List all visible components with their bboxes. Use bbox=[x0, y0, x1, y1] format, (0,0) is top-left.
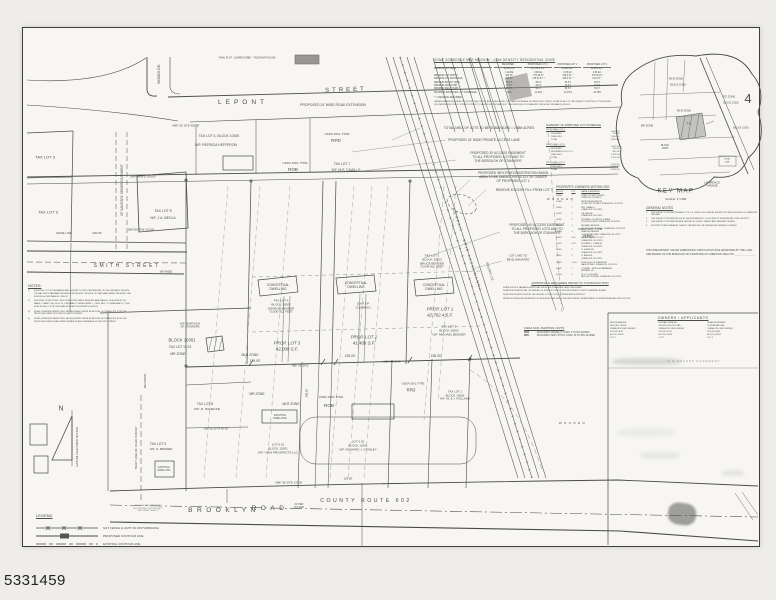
coverage-summary-title: SUMMARY OF IMPROVED LOT COVERAGE bbox=[546, 124, 620, 127]
soil-type-label: USDA SOIL TYPE bbox=[402, 382, 425, 385]
general-note-item: 1.THE SUBJECT PROPERTIES ARE LOTS 1 & 4 … bbox=[646, 212, 758, 217]
legend-title: LEGEND bbox=[36, 513, 52, 518]
po-block-cell: 10303 bbox=[556, 231, 572, 236]
bearing-label: N86° 56' 29"E 175.00' bbox=[275, 481, 302, 484]
keymap-site-label: P.S. bbox=[687, 122, 692, 125]
po-header-row: BLOCKLOTNAME & ADDRESS bbox=[556, 191, 653, 194]
po-block-cell: 10305 bbox=[556, 219, 572, 224]
note-item: 2)EXISTING CONDITIONS, INCLUDING WETLAND… bbox=[28, 300, 132, 309]
po-lot-cell: 1 bbox=[572, 195, 582, 200]
contour-lines bbox=[204, 186, 456, 478]
po-name-cell: H. BENDER STANHOPE, NJ 07874 bbox=[581, 255, 653, 260]
tax-lot-1-10306-label: TAX LOT 1 BLOCK 10306 N/F: W. & J. HOLLA… bbox=[440, 391, 470, 402]
soil-type-label: USDA SOIL TYPE bbox=[282, 162, 307, 166]
po-name-cell: R. HUNECKE STANHOPE, NJ 07874 bbox=[581, 249, 653, 254]
lot-lines bbox=[27, 55, 758, 545]
datum-label: DATUM FILED MAP No.939 bbox=[76, 427, 80, 466]
existing-dwelling-label: EXISTING DWELLING bbox=[273, 414, 287, 420]
po-name-cell: MICHAEL BENDER 200 BROOKLYN ROAD, STANHO… bbox=[581, 225, 653, 230]
soil-type-label: USDA SOIL TYPE bbox=[319, 396, 343, 400]
po-block-cell: 10303 bbox=[556, 225, 572, 230]
po-lot-cell: 9 bbox=[572, 255, 582, 260]
keymap-block-label: BLOCK 10302 bbox=[723, 102, 738, 105]
keymap-block-label: BLOCK 10301 bbox=[733, 127, 748, 130]
notes-list: 1)EXISTING LOT BOUNDARIES ARE SHOWN TO T… bbox=[28, 290, 132, 324]
note-text: THE SUBJECT PROPERTIES ARE SERVED BY PUB… bbox=[651, 221, 735, 224]
po-lot-cell: 1 bbox=[572, 225, 582, 230]
notes-title: NOTES: bbox=[28, 284, 132, 288]
bearing-label: S86°56'29"W 100.00' bbox=[128, 228, 154, 231]
zone-schedule-panel: ZONE SCHEDULE MLR MEDIUM - LOW DENSITY R… bbox=[434, 58, 612, 106]
tract-line-label: TRACT LINE OF FILED SURVEY bbox=[135, 426, 139, 469]
dimension-label: 198.30' bbox=[431, 354, 442, 358]
north-label: N bbox=[58, 406, 63, 415]
roads bbox=[27, 57, 758, 546]
mr-zone-label: MR ZONE bbox=[249, 392, 264, 396]
woods-drive-label: WOODS DR. bbox=[157, 64, 161, 84]
tax-lot-1103-label: TAX LOT 11.03 bbox=[169, 345, 191, 349]
po-name-cell: HIGH PROSPECTS LLC STANHOPE, NJ 07874 bbox=[581, 237, 653, 242]
brooklyn-road-label: BROOKLYN bbox=[188, 507, 260, 515]
coverage-group: PROPOSED LOT 2:ACCESS LANE1,062 S.F.DRIV… bbox=[546, 144, 620, 160]
po-header-cell: LOT bbox=[572, 191, 582, 194]
note-text: ROAD OPENING PERMIT WILL BE REQUIRED FRO… bbox=[34, 318, 132, 324]
coverage-summary-panel: SUMMARY OF IMPROVED LOT COVERAGE PROPOSE… bbox=[546, 124, 620, 172]
conceptual-dwelling-label: CONCEPTUAL DWELLING bbox=[345, 281, 368, 289]
po-block-cell: 10304 bbox=[556, 274, 572, 279]
note-text: EXISTING CONDITIONS, INCLUDING WETLANDS … bbox=[34, 300, 132, 309]
general-note-item: 3.THE SUBJECT PROPERTIES ARE SERVED BY P… bbox=[646, 221, 758, 224]
borough-owner-label: N/F: BOROUGH OF STANHOPE bbox=[180, 323, 200, 330]
approvals-list: SUBDIVISION & VARIANCE APPROVAL FROM THE… bbox=[503, 287, 637, 301]
po-block-cell: 10301 bbox=[556, 249, 572, 254]
po-row: 103058J.A. MEGLA STANHOPE, NJ 07874 bbox=[556, 213, 653, 218]
po-row: 103018R. HUNECKE STANHOPE, NJ 07874 bbox=[556, 249, 653, 254]
lot-8-owner-label: N/F: J.A. MEGLA bbox=[150, 216, 175, 220]
po-lot-cell: 8 bbox=[572, 249, 582, 254]
scan-smudge bbox=[722, 470, 744, 476]
po-row: 103057M.R. CAVALLO STANHOPE, NJ 07874 bbox=[556, 207, 653, 212]
leader-lines bbox=[352, 128, 502, 269]
zone-schedule-title: ZONE SCHEDULE MLR MEDIUM - LOW DENSITY R… bbox=[434, 58, 612, 62]
po-block-cell: 10301 bbox=[556, 243, 572, 248]
po-name-cell: J.A. MEGLA STANHOPE, NJ 07874 bbox=[581, 213, 653, 218]
property-owners-panel: PROPERTY OWNERS WITHIN 200' BLOCKLOTNAME… bbox=[556, 185, 653, 279]
legend-item-label: PROPOSED CONTOUR LINE bbox=[103, 532, 159, 540]
bearing-label: S86°56'29"W 65.00' bbox=[204, 427, 229, 430]
soil-code-rob: RoB bbox=[324, 403, 334, 409]
county-route-label: COUNTY ROUTE 602 bbox=[320, 498, 412, 505]
tax-lot-7-label: TAX LOT 7 bbox=[334, 162, 350, 166]
zone-row: MINIMUM LOT AREA40,000 S.F. 1 ACRE42,762… bbox=[434, 68, 612, 75]
po-row: 103031MICHAEL BENDER 200 BROOKLYN ROAD, … bbox=[556, 225, 653, 230]
hunecke-owner-label: N/F: R. HUNECKE bbox=[194, 408, 220, 412]
detention-basin-note: PROPOSED INFILTRATION/DETENTION BASIN AR… bbox=[478, 171, 548, 183]
po-header-cell: NAME & ADDRESS bbox=[581, 191, 653, 194]
lot-602-label: LOT 6.02 BLOCK 10301 N/F: RICHARD J. STA… bbox=[339, 440, 377, 451]
bearing-label: N86° 56' 29"E 450.00' bbox=[172, 124, 199, 127]
general-notes-list: 1.THE SUBJECT PROPERTIES ARE LOTS 1 & 4 … bbox=[646, 212, 758, 228]
po-block-cell: 10306 bbox=[556, 195, 572, 200]
po-name-cell: STATE OF NEW JERSEY TRENTON, NJ 08625 bbox=[581, 195, 653, 200]
po-row: 103016.01HIGH PROSPECTS LLC STANHOPE, NJ… bbox=[556, 237, 653, 242]
keymap-street-label: LAWRENCE AVENUE bbox=[704, 182, 720, 189]
po-lot-cell: 6.02 bbox=[572, 243, 582, 248]
owner-column: BRUCE BENDER HICKORY DRIVE STANHOPE, NEW… bbox=[610, 322, 659, 340]
po-row: 103042W. & J. HOLLAND BROOKLYN ROAD, STA… bbox=[556, 274, 653, 279]
keymap-block-label: BLOCK 10306 bbox=[670, 84, 685, 87]
po-block-cell: 10305 bbox=[556, 201, 572, 206]
tax-map-note: 60' PER TAX MAP bbox=[294, 503, 304, 509]
dimension-label: 139.00' bbox=[345, 354, 356, 358]
owners-applicants-panel: OWNERS / APPLICANTS BRUCE BENDER HICKORY… bbox=[610, 316, 756, 340]
zone-cell: 40,000 S.F. 1 ACRE bbox=[495, 68, 524, 75]
lot-line-eliminated-note: LOT LINE TO BE ELIMINATED bbox=[507, 254, 530, 262]
street-width-label: (40' WIDE) bbox=[160, 270, 173, 273]
zone-cell: 41,408 S.F. * 0.95 AC. bbox=[553, 68, 582, 75]
coverage-value: 4,881 S.F. bbox=[611, 139, 620, 142]
zone-cell: MAXIMUM IMPROVED LOT COVERAGE bbox=[434, 92, 495, 95]
coverage-row: TOTAL4,701 S.F. bbox=[546, 157, 620, 160]
note-text: EXISTING LOT BOUNDARIES ARE SHOWN TO THE… bbox=[34, 290, 132, 299]
scan-document-number: 5331459 bbox=[4, 572, 66, 589]
po-lot-cell: 6.01 bbox=[572, 237, 582, 242]
po-name-cell: RICHARD O'CONNOR & ANNE 9 WOODS DRIVE, S… bbox=[581, 219, 653, 224]
soil-type-label: USDA SOIL TYPE bbox=[324, 133, 349, 137]
tax-lot-4-block-label: TAX LOT 4 BLOCK 10303 SHARON BENDER 72,0… bbox=[268, 300, 294, 315]
zone-cell: 10.78% bbox=[583, 92, 612, 95]
existing-dwelling-label: EXISTING DWELLING bbox=[157, 466, 170, 472]
sheet-number: 4 bbox=[744, 91, 751, 107]
po-header-cell: BLOCK bbox=[556, 191, 572, 194]
limit-of-clearing-label: LIMIT OF CLEARING bbox=[355, 302, 370, 310]
tax-lot-1-michael-label: TAX LOT 1 BLOCK 10303 N/F: MICHAEL BENDE… bbox=[432, 325, 465, 336]
po-name-cell: SHARON BENDER 26 SPARTA ROAD, STANHOPE, … bbox=[581, 231, 653, 236]
po-lot-cell: 11.03 bbox=[572, 262, 582, 267]
brooklyn-road-label-2: ROAD bbox=[252, 505, 289, 513]
mr-zone-label: MR ZONE bbox=[170, 352, 185, 356]
po-lot-cell: 4 bbox=[572, 231, 582, 236]
note-text: ROAD OPENING PERMIT WILL BE REQUIRED FRO… bbox=[34, 311, 132, 317]
po-block-cell: 10301 bbox=[556, 237, 572, 242]
keymap-zone-label: MLR ZONE bbox=[669, 77, 683, 80]
north-arrow bbox=[52, 410, 72, 466]
zone-schedule-paragraph: VARIANCES ARE REQUIRED FOR PROPOSED LOTS… bbox=[434, 101, 612, 106]
po-name-cell: BOROUGH OF STANHOPE MAIN STREET, STANHOP… bbox=[581, 262, 653, 267]
bearing-label: N89°34'28"E 100.00' bbox=[130, 175, 156, 178]
tax-lot-4-10305-label: TAX LOT 4, BLOCK 10305 bbox=[199, 134, 239, 138]
dimension-label: 125.00' bbox=[343, 477, 352, 480]
general-notes-title: GENERAL NOTES bbox=[646, 206, 758, 210]
owner-column: SHARON BENDER 26 SPARTA ROAD STANHOPE, N… bbox=[707, 322, 756, 340]
note-item: 4)ROAD OPENING PERMIT WILL BE REQUIRED F… bbox=[28, 318, 132, 324]
po-lot-cell: 2 bbox=[572, 274, 582, 279]
po-block-cell: 10302 bbox=[556, 268, 572, 273]
po-name-cell: PATRICIA HEFFERON 10 LEPONT STREET, STAN… bbox=[581, 201, 653, 206]
po-row: 103019H. BENDER STANHOPE, NJ 07874 bbox=[556, 255, 653, 260]
soil-description: ROCKAWAY VERY STONY LOAM, 15 TO 25% SLOP… bbox=[537, 335, 595, 337]
soil-code: RoB bbox=[524, 332, 537, 334]
block-10301-label: BLOCK 10301 bbox=[168, 337, 195, 342]
po-lot-cell: 4 bbox=[572, 201, 582, 206]
keymap-title: KEY MAP bbox=[657, 188, 694, 196]
zone-cell: 42,762.4 S.F. * 0.98 AC. bbox=[524, 68, 553, 75]
general-note-item: 4.EXISTING TREES GREATER THAN 6" CALIPER… bbox=[646, 225, 758, 228]
tax-lot-3-label: TAX LOT 3 bbox=[35, 155, 55, 160]
approval-item: SEWER EXTENSION/TREATMENT WORKS APPROVAL… bbox=[503, 298, 637, 301]
approval-item: SUBDIVISION & VARIANCE APPROVAL FROM THE… bbox=[503, 287, 637, 290]
zone-line-label: ZONE LINE bbox=[56, 232, 72, 236]
zone-cell: 42,000 S.F. * 0.96 AC. bbox=[583, 68, 612, 75]
tax-lot-1-bruce-label: TAX LOT 1 BLOCK 10303 BRUCE BENDER 72,04… bbox=[420, 255, 444, 270]
bearing-label: N86° 56' 29"E bbox=[292, 364, 309, 367]
road-extension-note: PROPOSED 24' WIDE ROAD EXTENSION bbox=[300, 103, 366, 107]
po-block-cell: 10305 bbox=[556, 207, 572, 212]
zone-cell: MINIMUM LOT AREA bbox=[434, 68, 495, 75]
po-name-cell: W. & J. HOLLAND BROOKLYN ROAD, STANHOPE,… bbox=[581, 274, 653, 279]
po-row: 103021CONRAIL - ERIE LACKAWANNA NEWARK, … bbox=[556, 268, 653, 273]
scan-smudge bbox=[616, 428, 676, 437]
dimension-label: 175.00' bbox=[250, 359, 261, 363]
tax-lot-9-label: TAX LOT 9 bbox=[38, 210, 58, 215]
tax-lot-9-bender-label: TAX LOT 9 bbox=[150, 442, 166, 446]
coverage-label: TOTAL bbox=[551, 169, 557, 172]
scanned-survey-plan: LEPONTSTREETPROPOSED 24' WIDE ROAD EXTEN… bbox=[0, 0, 776, 600]
po-name-cell: M.R. CAVALLO STANHOPE, NJ 07874 bbox=[581, 207, 653, 212]
general-notes-panel: GENERAL NOTES 1.THE SUBJECT PROPERTIES A… bbox=[646, 206, 758, 228]
keymap-block-label: BLOCK 10303 bbox=[661, 144, 669, 150]
po-lot-cell: 7 bbox=[572, 207, 582, 212]
zone-schedule-table: REQUIREDPROPOSED LOT 1PROPOSED LOT 2PROP… bbox=[434, 64, 612, 95]
po-row: 103061STATE OF NEW JERSEY TRENTON, NJ 08… bbox=[556, 195, 653, 200]
mlr-zone-label: MLR ZONE bbox=[282, 402, 299, 406]
po-block-cell: 10301 bbox=[556, 262, 572, 267]
bearing-label: N86° 56' 29"E bbox=[384, 360, 401, 363]
po-row: 103059RICHARD O'CONNOR & ANNE 9 WOODS DR… bbox=[556, 219, 653, 224]
lepont-street-label-2: STREET bbox=[325, 87, 367, 96]
note-item: 3)ROAD OPENING PERMIT WILL BE REQUIRED F… bbox=[28, 311, 132, 317]
zone-row: MAXIMUM IMPROVED LOT COVERAGE15%11.41%10… bbox=[434, 92, 612, 95]
legend-item-label: EXISTING CONTOUR LINE bbox=[103, 540, 159, 548]
legend-item-label: SILT FENCE & LIMIT OF DISTURBANCE bbox=[103, 524, 159, 532]
legend-lines bbox=[36, 526, 98, 544]
approval-item: PLAN CERTIFICATION FROM THE SUSSEX COUNT… bbox=[503, 294, 637, 297]
excess-fill-note: REMOVE EXCESS FILL FROM LOT 7 bbox=[496, 188, 553, 192]
approval-item: SUBDIVISION APPROVAL OR WAIVER OF JURISD… bbox=[503, 290, 637, 293]
coverage-group: PROPOSED LOT 1:ACCESS LANE1,861 S.F.DRIV… bbox=[546, 129, 620, 142]
po-lot-cell: 9 bbox=[572, 219, 582, 224]
property-owners-table: BLOCKLOTNAME & ADDRESS103061STATE OF NEW… bbox=[556, 191, 653, 279]
note-text: THE SUBJECT PROPERTIES ARE LOTS 1 & 4 IN… bbox=[651, 212, 758, 217]
tax-lot-8-label: TAX LOT 8 bbox=[154, 209, 171, 213]
prop-lot-1-label: PROP. LOT 1 42,762.4 S.F. bbox=[427, 307, 454, 318]
access-lane-note: PROPOSED 24' WIDE PRIVATE ACCESS LANE bbox=[448, 138, 520, 142]
mlr-zone-label: MLR ZONE bbox=[241, 353, 258, 357]
lot-7-owner-label: N/F: M.R. CAVALLO bbox=[332, 168, 361, 172]
soil-code-rpd: RpD bbox=[331, 138, 341, 144]
approvals-panel: APPROVALS REQUIRED PRIOR TO CONSTRUCTION… bbox=[503, 281, 637, 301]
po-block-cell: 10305 bbox=[556, 213, 572, 218]
approvals-title: APPROVALS REQUIRED PRIOR TO CONSTRUCTION bbox=[503, 281, 637, 285]
po-row: 103054PATRICIA HEFFERON 10 LEPONT STREET… bbox=[556, 201, 653, 206]
note-item: 1)EXISTING LOT BOUNDARIES ARE SHOWN TO T… bbox=[28, 290, 132, 299]
soil-description: ROCKAWAY GRAVELLY LOAM, 3 TO 8% SLOPES bbox=[537, 332, 590, 334]
prop-lot-2-label: PROP. LOT 2 41,408 S.F. bbox=[351, 335, 378, 346]
po-row: 103034SHARON BENDER 26 SPARTA ROAD, STAN… bbox=[556, 231, 653, 236]
legend-items: SILT FENCE & LIMIT OF DISTURBANCEPROPOSE… bbox=[103, 524, 159, 548]
coverage-row: TOTAL4,525 S.F. bbox=[546, 169, 620, 172]
po-lot-cell: 1 bbox=[572, 268, 582, 273]
scan-smudge bbox=[640, 452, 680, 459]
po-name-cell: CONRAIL - ERIE LACKAWANNA NEWARK, NJ bbox=[581, 268, 653, 273]
soil-code-rob: RoB bbox=[288, 167, 298, 173]
total-area-note: TOTAL AREA OF LOTS TO BE SUBDIVIDED = 2.… bbox=[444, 126, 535, 130]
sewer-easement-label: 25' SANITARY SEWER EASEMENT bbox=[120, 164, 124, 216]
prop-lot-3-label: PROP. LOT 3 42,000 S.F. bbox=[274, 341, 301, 352]
property-owners-title: PROPERTY OWNERS WITHIN 200' bbox=[556, 185, 653, 189]
access-easement-30-note: PROPOSED 30' ACCESS EASEMENT TO ALL PROP… bbox=[470, 151, 525, 163]
coverage-label: TOTAL bbox=[551, 139, 557, 142]
owners-applicants-columns: BRUCE BENDER HICKORY DRIVE STANHOPE, NEW… bbox=[610, 322, 756, 340]
lepont-street-label: LEPONT bbox=[218, 99, 268, 107]
lot-601-label: LOT 6.01 BLOCK 10301 N/F: HIGH PROSPECTS… bbox=[258, 443, 298, 454]
coverage-summary-table: PROPOSED LOT 1:ACCESS LANE1,861 S.F.DRIV… bbox=[546, 129, 620, 173]
dimension-label: 100.00' bbox=[92, 232, 102, 236]
po-row: 103016.02RICHARD J. STANLEY STANHOPE, NJ… bbox=[556, 243, 653, 248]
owners-applicants-title: OWNERS / APPLICANTS bbox=[610, 316, 756, 320]
zone-cell: 15% bbox=[495, 92, 524, 95]
note-text: EXISTING TREES GREATER THAN 6" CALIPER W… bbox=[651, 225, 737, 228]
zone-cell: 11.41% bbox=[524, 92, 553, 95]
coverage-value: 4,525 S.F. bbox=[611, 169, 620, 172]
dimension-label: 288.00' bbox=[305, 389, 308, 398]
zone-cell: 10.15% bbox=[553, 92, 582, 95]
keymap-zone-label: MLR ZONE bbox=[677, 109, 691, 112]
wooded-label: WOODED bbox=[559, 422, 587, 426]
coverage-row: TOTAL4,881 S.F. bbox=[546, 139, 620, 142]
po-block-cell: 10301 bbox=[556, 255, 572, 260]
bender-owner-label: N/F: H. BENDER bbox=[150, 448, 173, 452]
conceptual-dwelling-label: CONCEPTUAL DWELLING bbox=[267, 283, 290, 291]
row-note: RIGHT OF WAY PER ROAD RECONSTRUCTION PRO… bbox=[133, 505, 163, 513]
zone-schedule-footnote: * = VARIANCE REQUIRED bbox=[434, 97, 612, 99]
po-lot-cell: 8 bbox=[572, 213, 582, 218]
soil-code-rpd: RpD bbox=[407, 387, 416, 392]
soil-code: RpD bbox=[524, 335, 537, 337]
scan-smudge bbox=[612, 358, 682, 365]
revision-label: REVISION bbox=[144, 374, 148, 388]
approval-note: THIS PRELIMINARY MAJOR SUBDIVISION APPLI… bbox=[646, 249, 758, 256]
notes-panel: NOTES: 1)EXISTING LOT BOUNDARIES ARE SHO… bbox=[28, 284, 132, 324]
coverage-label: TOTAL bbox=[551, 157, 557, 160]
po-name-cell: RICHARD J. STANLEY STANHOPE, NJ 07874 bbox=[581, 243, 653, 248]
keymap-scale: SCALE: 1"=300' bbox=[665, 198, 687, 202]
owner-column: MICHAEL BENDER 200 BROOKLYN ROAD STANHOP… bbox=[659, 322, 708, 340]
keymap-zone-line-label: ZONE LINE bbox=[724, 158, 730, 163]
filed-map-note: FINAL PLAT - LOWRE HOBBY - FILED MAP No.… bbox=[219, 57, 276, 60]
keymap-zone-label: MR ZONE bbox=[641, 124, 653, 127]
hefferon-owner-label: N/F: PATRICIA HEFFERON bbox=[195, 143, 237, 147]
po-row: 1030111.03BOROUGH OF STANHOPE MAIN STREE… bbox=[556, 262, 653, 267]
coverage-group: PROPOSED LOT 3:DRIVEWAY2,225 S.F.DWELLIN… bbox=[546, 162, 620, 173]
tax-lot-8-hunecke-label: TAX LOT 8 bbox=[197, 402, 213, 406]
conceptual-dwelling-label: CONCEPTUAL DWELLING bbox=[423, 283, 446, 291]
smith-street-label: SMITH STREET bbox=[94, 263, 161, 269]
keymap-zone-label: RC ZONE bbox=[723, 95, 735, 98]
coverage-value: 4,701 S.F. bbox=[611, 157, 620, 160]
